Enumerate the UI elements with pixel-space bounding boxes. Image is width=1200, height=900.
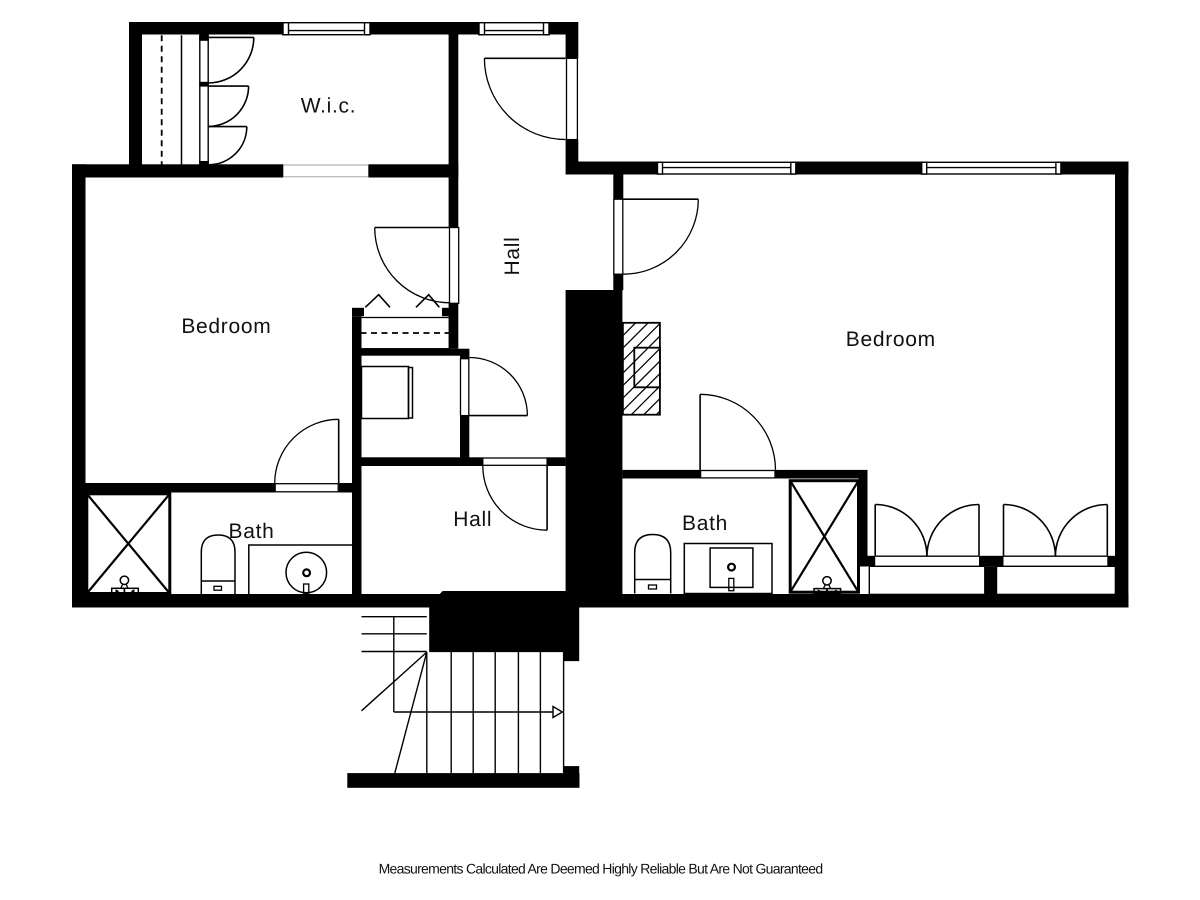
svg-text:Bedroom: Bedroom: [846, 328, 936, 351]
svg-text:Bath: Bath: [682, 512, 728, 535]
svg-text:Bath: Bath: [229, 520, 275, 543]
svg-text:Hall: Hall: [501, 237, 524, 276]
svg-text:W.i.c.: W.i.c.: [301, 95, 357, 118]
svg-text:Hall: Hall: [453, 508, 492, 531]
svg-text:Bedroom: Bedroom: [181, 315, 271, 338]
svg-text:Measurements Calculated Are De: Measurements Calculated Are Deemed Highl…: [379, 861, 823, 877]
